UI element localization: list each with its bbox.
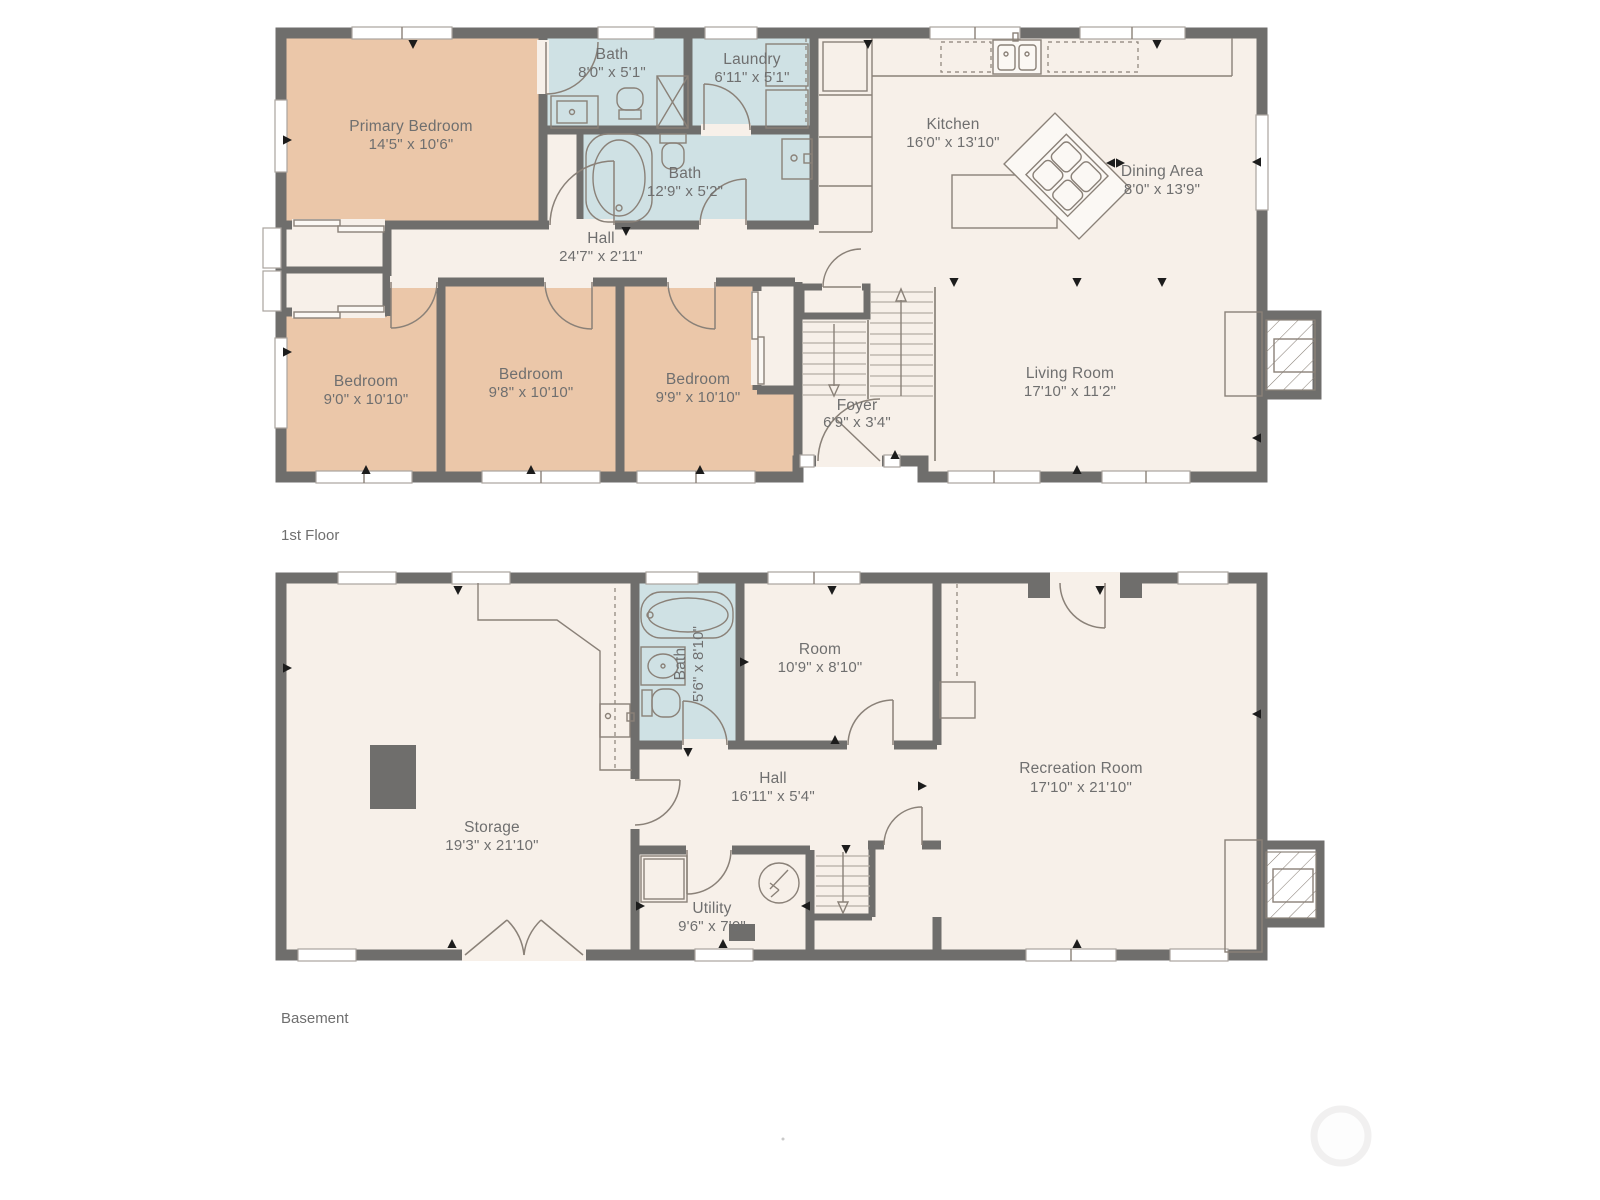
first-floor-plan: Primary Bedroom 14'5" x 10'6" Bath 8'0" … xyxy=(263,27,1317,544)
svg-text:Room: Room xyxy=(799,641,841,658)
room-name: Primary Bedroom xyxy=(349,118,473,135)
support-column xyxy=(370,745,416,809)
window xyxy=(338,572,396,584)
window xyxy=(275,100,287,172)
window xyxy=(1170,949,1228,961)
room-label-bedroom-2: Bedroom 9'8" x 10'10" xyxy=(489,366,574,401)
sidelight-window xyxy=(800,455,814,467)
floorplan-canvas: Primary Bedroom 14'5" x 10'6" Bath 8'0" … xyxy=(0,0,1600,1200)
svg-text:6'9" x 3'4": 6'9" x 3'4" xyxy=(823,414,891,431)
window-well xyxy=(263,271,281,311)
room-label-living-room: Living Room 17'10" x 11'2" xyxy=(1024,365,1116,400)
svg-text:Kitchen: Kitchen xyxy=(926,116,979,133)
window xyxy=(1178,572,1228,584)
sliding-door xyxy=(758,337,764,384)
svg-text:Bath: Bath xyxy=(669,165,702,182)
room-label-bedroom-3: Bedroom 9'9" x 10'10" xyxy=(656,371,741,406)
svg-text:9'6" x 7'0": 9'6" x 7'0" xyxy=(678,918,746,935)
room-label-dining-area: Dining Area 8'0" x 13'9" xyxy=(1121,163,1204,198)
floorplan-page: Primary Bedroom 14'5" x 10'6" Bath 8'0" … xyxy=(0,0,1600,1200)
door-stub xyxy=(1120,583,1142,598)
svg-text:8'0" x 13'9": 8'0" x 13'9" xyxy=(1124,181,1200,198)
svg-text:10'9" x 8'10": 10'9" x 8'10" xyxy=(778,659,863,676)
svg-text:16'11" x 5'4": 16'11" x 5'4" xyxy=(731,788,815,805)
sliding-door xyxy=(338,226,384,232)
svg-text:Bath: Bath xyxy=(672,648,689,681)
room-dims: 14'5" x 10'6" xyxy=(369,136,454,153)
sliding-door xyxy=(338,306,384,312)
svg-text:16'0" x 13'10": 16'0" x 13'10" xyxy=(906,134,999,151)
svg-text:17'10" x 11'2": 17'10" x 11'2" xyxy=(1024,383,1116,400)
sliding-door xyxy=(294,220,340,226)
window xyxy=(298,949,356,961)
svg-text:19'3" x 21'10": 19'3" x 21'10" xyxy=(445,837,538,854)
window xyxy=(598,27,654,39)
sliding-door xyxy=(294,312,340,318)
tiny-dot xyxy=(782,1138,785,1141)
svg-text:6'11" x 5'1": 6'11" x 5'1" xyxy=(714,69,789,86)
svg-text:9'8" x 10'10": 9'8" x 10'10" xyxy=(489,384,574,401)
svg-text:9'0" x 10'10": 9'0" x 10'10" xyxy=(324,391,409,408)
svg-text:Laundry: Laundry xyxy=(723,51,780,68)
svg-text:12'9" x 5'2": 12'9" x 5'2" xyxy=(647,183,723,200)
svg-text:5'6" x 8'10": 5'6" x 8'10" xyxy=(690,626,707,702)
window-well xyxy=(263,228,281,268)
svg-text:Hall: Hall xyxy=(587,230,615,247)
svg-text:17'10" x 21'10": 17'10" x 21'10" xyxy=(1030,779,1132,796)
svg-text:Storage: Storage xyxy=(464,819,520,836)
door-stub xyxy=(1028,583,1050,598)
svg-text:Living Room: Living Room xyxy=(1026,365,1114,382)
window xyxy=(646,572,698,584)
svg-text:Bedroom: Bedroom xyxy=(334,373,398,390)
svg-text:Bedroom: Bedroom xyxy=(666,371,730,388)
window xyxy=(705,27,757,39)
svg-text:Recreation Room: Recreation Room xyxy=(1019,760,1143,777)
svg-text:Utility: Utility xyxy=(692,900,731,917)
room-label-laundry: Laundry 6'11" x 5'1" xyxy=(714,51,789,86)
svg-text:Bedroom: Bedroom xyxy=(499,366,563,383)
sliding-door xyxy=(752,292,758,339)
svg-text:Dining Area: Dining Area xyxy=(1121,163,1204,180)
svg-text:24'7" x 2'11": 24'7" x 2'11" xyxy=(559,248,643,265)
svg-text:9'9" x 10'10": 9'9" x 10'10" xyxy=(656,389,741,406)
window xyxy=(452,572,510,584)
window xyxy=(695,949,753,961)
svg-text:Foyer: Foyer xyxy=(837,397,878,414)
svg-text:8'0" x 5'1": 8'0" x 5'1" xyxy=(578,64,646,81)
floor-title-basement: Basement xyxy=(281,1010,349,1027)
svg-text:Bath: Bath xyxy=(596,46,629,63)
watermark-circle xyxy=(1314,1109,1368,1163)
basement-plan: Bath 5'6" x 8'10" Room 10'9" x 8'10" Sto… xyxy=(281,572,1320,1027)
floor-title-1st: 1st Floor xyxy=(281,527,339,544)
svg-text:Hall: Hall xyxy=(759,770,787,787)
room-label-bedroom-1: Bedroom 9'0" x 10'10" xyxy=(324,373,409,408)
